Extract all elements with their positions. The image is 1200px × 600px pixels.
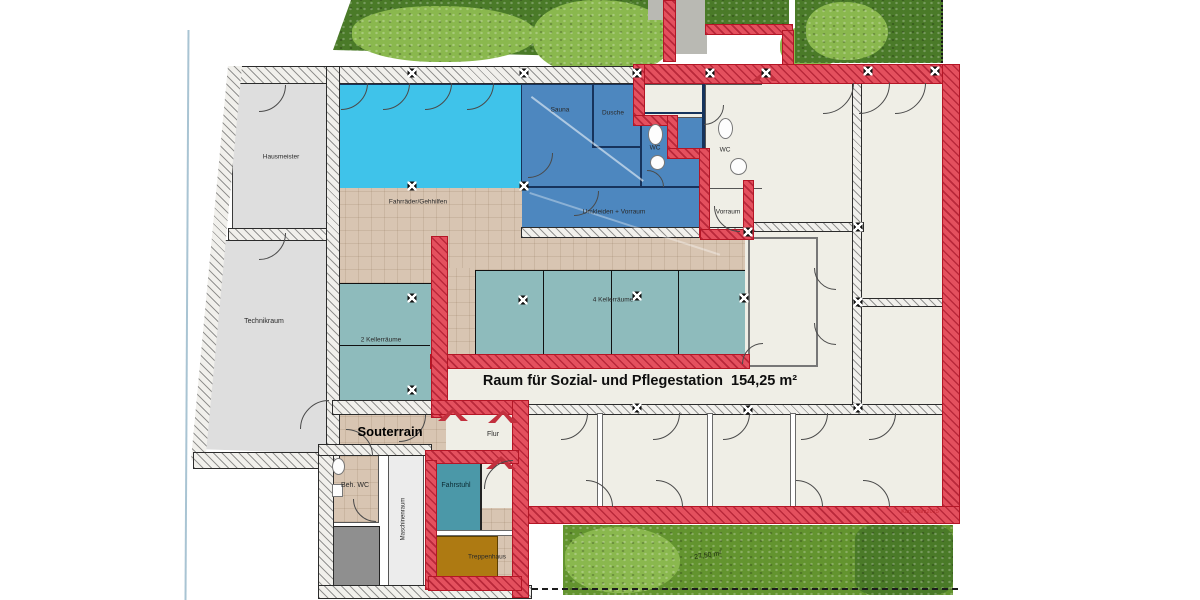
hedge bbox=[565, 527, 680, 593]
property-dotted-line bbox=[941, 0, 943, 63]
red-wall-segment bbox=[431, 236, 448, 418]
wall-segment bbox=[852, 82, 862, 412]
red-wall-segment bbox=[705, 24, 793, 35]
garden-bed bbox=[705, 0, 789, 25]
junction-marker bbox=[520, 69, 529, 78]
red-wall-segment bbox=[512, 400, 529, 598]
red-wall-right bbox=[942, 64, 960, 524]
junction-marker bbox=[408, 386, 417, 395]
room-label-vorraum: Vorraum bbox=[716, 208, 741, 215]
junction-marker bbox=[633, 292, 642, 301]
label-plan-note: Kart. März2025 bbox=[901, 509, 939, 515]
junction-marker bbox=[520, 182, 529, 191]
tree-canopy bbox=[806, 2, 888, 60]
label-souterrain: Souterrain bbox=[357, 425, 422, 439]
junction-marker bbox=[706, 69, 715, 78]
room-fahrstuhl bbox=[432, 462, 482, 534]
room-label-fahrstuhl: Fahrstuhl bbox=[441, 482, 470, 490]
room-label-technikraum: Technikraum bbox=[244, 318, 284, 326]
wall-partition bbox=[432, 530, 514, 536]
room-label-flur: Flur bbox=[487, 431, 499, 439]
room-label-umkleiden: Umkleiden + Vorraum bbox=[583, 208, 646, 215]
wall-segment bbox=[318, 444, 432, 456]
red-wall-segment bbox=[699, 148, 710, 238]
room-label-pflegestation: Raum für Sozial- und Pflegestation 154,2… bbox=[483, 374, 797, 390]
junction-marker bbox=[633, 69, 642, 78]
floor-plan-canvas: Hausmeister Technikraum Sauna Dusche WC … bbox=[0, 0, 1200, 600]
red-wall-segment bbox=[425, 460, 437, 590]
room-label-4-kellerraeume: 4 Kellerräume bbox=[593, 296, 633, 303]
pflegestation-area: 154,25 m² bbox=[731, 373, 797, 389]
junction-marker bbox=[854, 404, 863, 413]
wall-partition bbox=[707, 413, 713, 509]
wall-partition bbox=[592, 84, 594, 148]
junction-marker bbox=[744, 228, 753, 237]
red-wall-segment bbox=[663, 0, 676, 62]
junction-marker bbox=[633, 404, 642, 413]
wall-divider bbox=[332, 345, 430, 346]
boundary-dashed-line bbox=[532, 588, 958, 590]
junction-marker bbox=[408, 294, 417, 303]
room-label-2-kellerraeume: 2 Kellerräume bbox=[361, 336, 401, 343]
room-label-treppenhaus: Treppenhaus bbox=[468, 553, 506, 560]
junction-marker bbox=[519, 296, 528, 305]
junction-marker bbox=[744, 406, 753, 415]
red-wall-segment bbox=[428, 576, 522, 591]
corridor bbox=[332, 268, 432, 283]
sink-fixture bbox=[650, 155, 665, 170]
tree-canopy bbox=[352, 6, 537, 62]
junction-marker bbox=[854, 223, 863, 232]
site-boundary-line bbox=[185, 30, 190, 600]
room-label-wc-right: WC bbox=[720, 146, 731, 153]
junction-marker bbox=[408, 182, 417, 191]
wall-partition bbox=[521, 186, 705, 188]
junction-marker bbox=[740, 294, 749, 303]
room-label-hausmeister: Hausmeister bbox=[263, 153, 299, 160]
wall-segment bbox=[858, 298, 946, 307]
junction-marker bbox=[408, 69, 417, 78]
room-label-wc-left: WC bbox=[650, 144, 661, 151]
room-label-fahrraeder: Fahrräder/Gehhilfen bbox=[389, 198, 447, 205]
wall-partition bbox=[640, 112, 704, 114]
room-label-dusche: Dusche bbox=[602, 109, 624, 116]
red-wall-top bbox=[633, 64, 960, 84]
room-label-maschinenraum: Maschinenraum bbox=[401, 498, 408, 541]
wall-segment bbox=[332, 400, 435, 415]
room-label-beh-wc: Beh. WC bbox=[341, 482, 369, 490]
sink-fixture bbox=[730, 158, 747, 175]
toilet-fixture bbox=[648, 124, 663, 145]
junction-marker bbox=[931, 67, 940, 76]
wall-divider bbox=[611, 270, 612, 356]
wall-segment bbox=[745, 222, 864, 232]
red-wall-bottom bbox=[527, 506, 960, 524]
junction-marker bbox=[854, 298, 863, 307]
garden-path bbox=[673, 0, 707, 54]
wall-divider bbox=[678, 270, 679, 356]
room-label-sauna: Sauna bbox=[551, 106, 570, 113]
toilet-fixture bbox=[332, 458, 345, 475]
wall-partition bbox=[790, 413, 796, 509]
junction-marker bbox=[762, 69, 771, 78]
wall-divider bbox=[543, 270, 544, 356]
red-wall-segment bbox=[430, 354, 750, 369]
hedge bbox=[855, 525, 953, 595]
junction-marker bbox=[864, 67, 873, 76]
pflegestation-name: Raum für Sozial- und Pflegestation bbox=[483, 373, 723, 389]
toilet-fixture bbox=[718, 118, 733, 139]
